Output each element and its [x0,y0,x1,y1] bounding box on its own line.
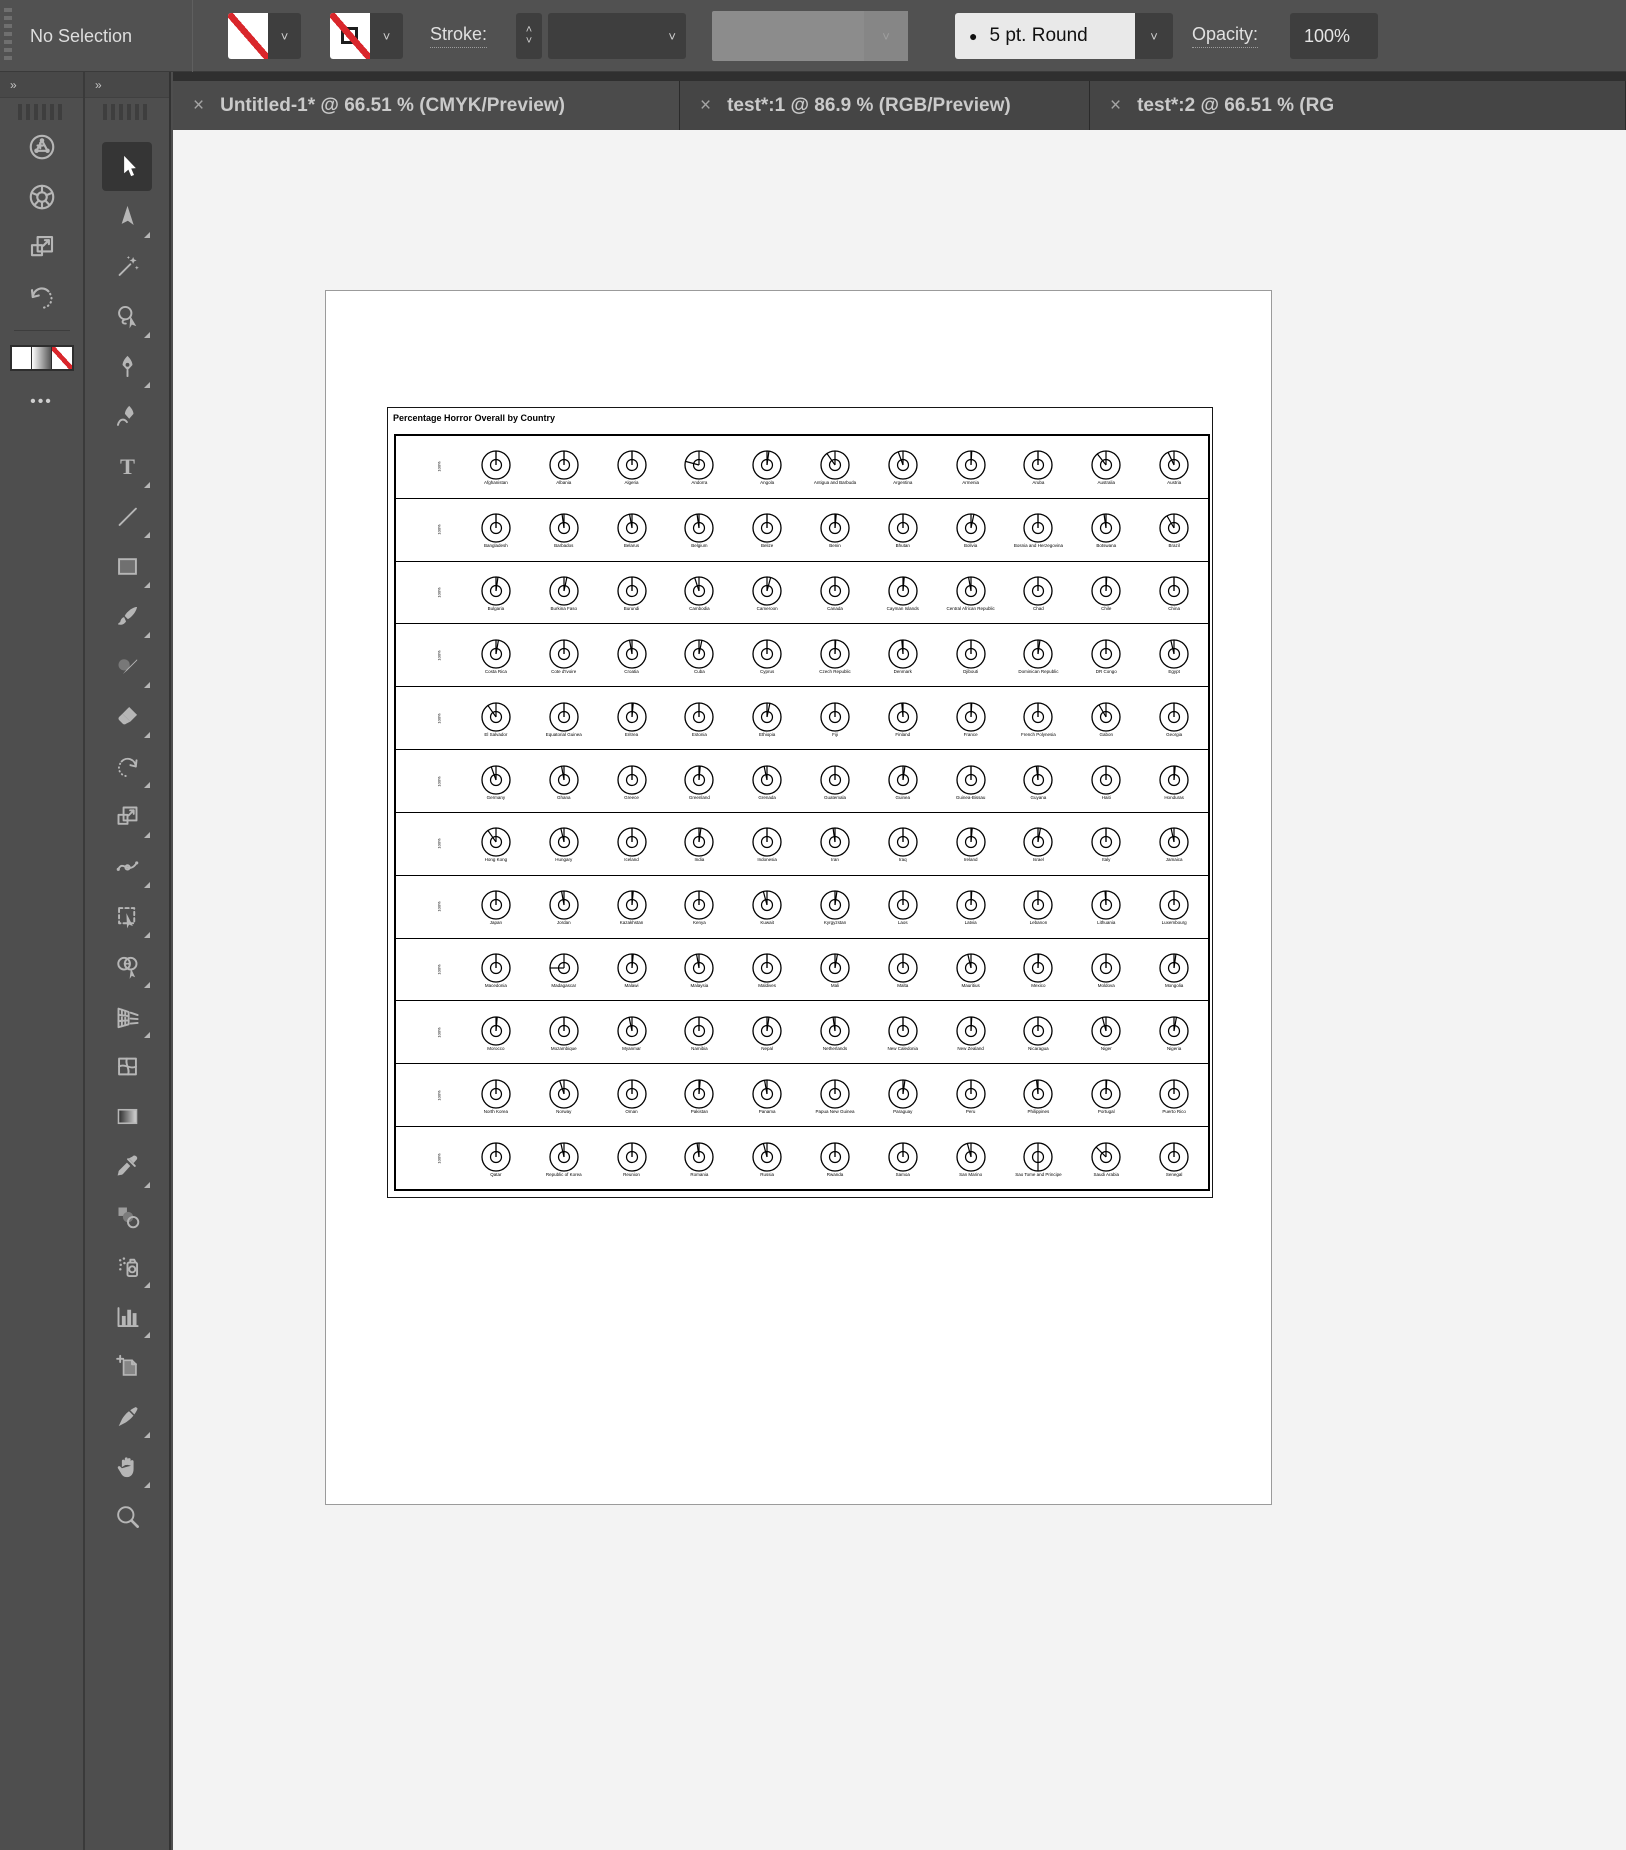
gauge-cell[interactable]: Paraguay [886,1077,920,1114]
pen-tool[interactable] [102,342,152,391]
gauge-cell[interactable]: Iran [818,825,852,862]
gauge-dial-icon [1021,888,1055,922]
pen [114,353,141,380]
paintbrush-tool[interactable] [102,592,152,641]
gauge-cell[interactable]: Central African Republic [946,574,994,611]
gauge-cell[interactable]: Iraq [886,825,920,862]
row-axis-label: 100% [436,964,441,974]
gauge-cell[interactable]: Saudi Arabia [1089,1140,1123,1177]
country-label: Bulgaria [488,606,505,611]
gauge-cell[interactable]: Peru [954,1077,988,1114]
country-label: Puerto Rico [1162,1109,1186,1114]
gauge-cell[interactable]: France [954,700,988,737]
gauge-cell[interactable]: Maldives [750,951,784,988]
gauge-cell[interactable]: Chad [1021,574,1055,611]
gauge-dial-icon [479,763,513,797]
variable-width-profile-dropdown[interactable]: ˅ [712,11,908,61]
gauge-cell[interactable]: Niger [1089,1014,1123,1051]
gauge-cell[interactable]: Kenya [682,888,716,925]
gauge-cell[interactable]: El Salvador [479,700,513,737]
gauge-cell[interactable]: Malaysia [682,951,716,988]
gauge-dial-icon [1021,574,1055,608]
gauge-cell[interactable]: Kazakhstan [615,888,649,925]
shape-builder-tool[interactable] [102,942,152,991]
free-transform-tool[interactable] [102,892,152,941]
gauge-cell[interactable]: Cote d'Ivoire [547,637,581,674]
direct-selection-tool[interactable] [102,192,152,241]
gauge-cell[interactable]: Jordan [547,888,581,925]
symbol-sprayer [114,1253,141,1280]
rotate-view-wheel-icon [27,182,57,212]
gauge-cell[interactable]: Oman [615,1077,649,1114]
country-label: Paraguay [893,1109,912,1114]
gauge-cell[interactable]: Puerto Rico [1157,1077,1191,1114]
gauge-cell[interactable]: Austria [1157,448,1191,485]
gauge-dial-icon [1089,637,1123,671]
opacity-field[interactable]: 100% [1290,13,1378,59]
gauge-cell[interactable]: Luxembourg [1157,888,1191,925]
gauge-cell[interactable]: Italy [1089,825,1123,862]
gauge-cell[interactable]: Romania [682,1140,716,1177]
gauge-dial-icon [750,448,784,482]
gauge-cell[interactable]: Netherlands [818,1014,852,1051]
gauge-dial-icon [818,763,852,797]
country-label: Kenya [693,920,706,925]
gauge-dial-icon [886,763,920,797]
hand-tool[interactable] [102,1442,152,1491]
brush-definition-control[interactable]: ● 5 pt. Round ˅ [955,13,1173,59]
gauge-grid[interactable]: 100% Afghanistan Albania Algeria [394,434,1210,1191]
shaper-tool[interactable] [102,642,152,691]
gauge-cell[interactable]: Lithuania [1089,888,1123,925]
gauge-dial-icon [682,1077,716,1111]
gauge-dial-icon [547,888,581,922]
gauge-cell[interactable]: Botswana [1089,511,1123,548]
gauge-cell[interactable]: Bosnia and Herzegovina [1014,511,1063,548]
opacity-label[interactable]: Opacity: [1192,24,1258,48]
gauge-cell[interactable]: Laos [886,888,920,925]
left-docks: » ••• » T [0,72,173,1850]
country-label: Morocco [487,1046,504,1051]
gauge-cell[interactable]: North Korea [479,1077,513,1114]
country-label: Mongolia [1165,983,1183,988]
gauge-cell[interactable]: Andorra [682,448,716,485]
gauge-dial-icon [1021,1077,1055,1111]
gauge-cell[interactable]: Mauritius [954,951,988,988]
gauge-cell[interactable]: Honduras [1157,763,1191,800]
gauge-cell[interactable]: Canada [818,574,852,611]
gauge-cell[interactable]: Panama [750,1077,784,1114]
blend [114,1203,141,1230]
artboard[interactable]: Percentage Horror Overall by Country 100… [325,290,1272,1505]
country-label: Cuba [694,669,705,674]
gauge-cell[interactable]: Brazil [1157,511,1191,548]
country-label: Cambodia [689,606,710,611]
gauge-cell[interactable]: Germany [479,763,513,800]
gauge-cell[interactable]: Denmark [886,637,920,674]
gauge-dial-icon [615,700,649,734]
gauge-cell[interactable]: Jamaica [1157,825,1191,862]
gauge-cell[interactable]: Malawi [615,951,649,988]
gauge-cell[interactable]: Qatar [479,1140,513,1177]
gauge-dial-icon [954,700,988,734]
tools-grip-handle[interactable] [103,104,151,120]
gauge-cell[interactable]: Eritrea [615,700,649,737]
gauge-cell[interactable]: Nicaragua [1021,1014,1055,1051]
none-swatch[interactable] [52,347,72,369]
gauge-cell[interactable]: Malta [886,951,920,988]
revert-rotate-button[interactable] [14,272,70,322]
gauge-dial-icon [886,1077,920,1111]
gauge-cell[interactable]: Benin [818,511,852,548]
gauge-cell[interactable]: San Marino [954,1140,988,1177]
gauge-cell[interactable]: Mongolia [1157,951,1191,988]
gauge-cell[interactable]: Ethiopia [750,700,784,737]
stroke-width-stepper[interactable]: ˄˅ [516,13,542,59]
gauge-cell[interactable]: Gabon [1089,700,1123,737]
fill-dropdown-chevron-icon[interactable]: ˅ [268,13,301,59]
gauge-cell[interactable]: Cambodia [682,574,716,611]
zoom-tool[interactable] [102,1492,152,1541]
gauge-cell[interactable]: Moldova [1089,951,1123,988]
gauge-cell[interactable]: Burkina Faso [547,574,581,611]
gauge-cell[interactable]: Guatemala [818,763,852,800]
gauge-cell[interactable]: Burundi [615,574,649,611]
gauge-cell[interactable]: Georgia [1157,700,1191,737]
blend-tool[interactable] [102,1192,152,1241]
gauge-cell[interactable]: Madagascar [547,951,581,988]
document-tab[interactable]: × test*:1 @ 86.9 % (RGB/Preview) [680,81,1090,130]
fill-none-swatch-icon[interactable] [228,13,268,59]
gauge-row: 100% Bulgaria Burkina Faso Burundi [396,562,1208,625]
curvature-tool[interactable] [102,392,152,441]
gauge-dial-icon [1157,448,1191,482]
tools-collapse-button[interactable]: » [85,72,169,98]
gauge-cell[interactable]: Cameroon [750,574,784,611]
gauge-cell[interactable]: Japan [479,888,513,925]
gauge-dial-icon [615,511,649,545]
gauge-cell[interactable]: Myanmar [615,1014,649,1051]
dock-grip-handle[interactable] [18,104,65,120]
gauge-cell[interactable]: Argentina [886,448,920,485]
country-label: Ethiopia [759,732,775,737]
type: T [114,453,141,480]
slice-tool[interactable] [102,1392,152,1441]
gauge-cell[interactable]: Dominican Republic [1018,637,1058,674]
line-segment-tool[interactable] [102,492,152,541]
tab-close-icon[interactable]: × [700,95,711,117]
gauge-dial-icon [1089,1014,1123,1048]
svg-text:T: T [119,454,134,479]
stroke-color-control[interactable]: ˅ [330,13,403,59]
gauge-cell[interactable]: Guyana [1021,763,1055,800]
selection-tool[interactable] [102,142,152,191]
country-label: Luxembourg [1162,920,1187,925]
symbol-sprayer-tool[interactable] [102,1242,152,1291]
gauge-cell[interactable]: Bulgaria [479,574,513,611]
stroke-none-swatch-icon[interactable] [330,13,370,59]
gauge-cell[interactable]: Latvia [954,888,988,925]
gauge-cell[interactable]: Iceland [615,825,649,862]
country-label: Afghanistan [484,480,508,485]
scale-tool[interactable] [102,792,152,841]
lasso-tool[interactable] [102,292,152,341]
country-label: Norway [556,1109,571,1114]
gauge-cell[interactable]: Israel [1021,825,1055,862]
country-label: Mali [831,983,839,988]
country-label: Lebanon [1030,920,1048,925]
country-label: Nepal [761,1046,773,1051]
gauge-cell[interactable]: Chile [1089,574,1123,611]
gauge-cell[interactable]: Cyprus [750,637,784,674]
eyedropper-tool[interactable] [102,1142,152,1191]
column-graph-tool[interactable] [102,1292,152,1341]
country-label: Ghana [557,795,571,800]
country-label: Argentina [893,480,912,485]
gauge-dial-icon [547,1014,581,1048]
country-label: Bolivia [964,543,977,548]
gauge-dial-icon [1157,825,1191,859]
gauge-cell[interactable]: Estonia [682,700,716,737]
country-label: Iceland [624,857,639,862]
eyedropper [114,1153,141,1180]
document-tab[interactable]: × test*:2 @ 66.51 % (RG [1090,81,1626,130]
country-label: Equatorial Guinea [546,732,582,737]
gauge-cell[interactable]: Armenia [954,448,988,485]
country-label: Nicaragua [1028,1046,1049,1051]
gauge-cell[interactable]: Greece [615,763,649,800]
gauge-dial-icon [818,574,852,608]
country-label: Czech Republic [819,669,851,674]
gauge-cell[interactable]: Philippines [1021,1077,1055,1114]
gauge-cell[interactable]: Guinea-Bissau [954,763,988,800]
gauge-cell[interactable]: Costa Rica [479,637,513,674]
gauge-dial-icon [954,763,988,797]
gauge-dial-icon [682,574,716,608]
rotate-view-wheel-button[interactable] [14,172,70,222]
gauge-cell[interactable]: Djibouti [954,637,988,674]
gauge-cell[interactable]: Antigua and Barbuda [814,448,856,485]
type-tool[interactable]: T [102,442,152,491]
touch-widget-button[interactable] [14,122,70,172]
control-bar-grip[interactable] [4,8,12,64]
row-axis-label: 100% [436,776,441,786]
gauge-cell[interactable]: Mali [818,951,852,988]
gauge-cell[interactable]: Egypt [1157,637,1191,674]
gauge-cell[interactable]: India [682,825,716,862]
gauge-dial-icon [682,700,716,734]
gauge-dial-icon [1089,825,1123,859]
gauge-cell[interactable]: Greenland [682,763,716,800]
gauge-cell[interactable]: Guinea [886,763,920,800]
gauge-cell[interactable]: New Caledonia [886,1014,920,1051]
free-transform [114,903,141,930]
swatches-strip[interactable] [10,345,74,371]
pasteboard[interactable]: Percentage Horror Overall by Country 100… [173,130,1626,1850]
line-segment [114,503,141,530]
stroke-width-chevron-icon[interactable]: ˅ [668,29,676,44]
tab-close-icon[interactable]: × [1110,95,1121,117]
gauge-cell[interactable]: Samoa [886,1140,920,1177]
gauge-dial-icon [1089,700,1123,734]
country-label: Russia [760,1172,774,1177]
gauge-cell[interactable]: China [1157,574,1191,611]
gauge-cell[interactable]: Bolivia [954,511,988,548]
country-label: Fiji [832,732,838,737]
gauge-cell[interactable]: Republic of Korea [546,1140,582,1177]
country-label: Cameroon [757,606,778,611]
gauge-dial-icon [1157,574,1191,608]
gauge-cell[interactable]: Bangladesh [479,511,513,548]
brush-definition-chevron-icon[interactable]: ˅ [1135,13,1173,59]
gauge-cell[interactable]: Afghanistan [479,448,513,485]
gauge-cell[interactable]: Mexico [1021,951,1055,988]
gauge-cell[interactable]: Belarus [615,511,649,548]
gauge-cell[interactable]: Namibia [682,1014,716,1051]
gauge-dial-icon [1157,763,1191,797]
gauge-cell[interactable]: Belgium [682,511,716,548]
mesh-tool[interactable] [102,1042,152,1091]
divider [192,0,193,72]
brush-definition-value[interactable]: ● 5 pt. Round [955,13,1135,59]
gauge-dial-icon [479,888,513,922]
magic-wand-tool[interactable] [102,242,152,291]
gauge-cell[interactable]: Papua New Guinea [815,1077,854,1114]
country-label: San Marino [959,1172,982,1177]
country-label: Pakistan [691,1109,708,1114]
gauge-cell[interactable]: Norway [547,1077,581,1114]
gauge-cell[interactable]: Reunion [615,1140,649,1177]
gauge-cell[interactable]: French Polynesia [1021,700,1056,737]
gauge-dial-icon [682,511,716,545]
gauge-cell[interactable]: Hungary [547,825,581,862]
dock-collapse-button[interactable]: » [0,72,83,98]
gauge-dial-icon [547,637,581,671]
lasso [114,303,141,330]
gauge-cell[interactable]: Sao Tome and Principe [1015,1140,1061,1177]
gauge-cell[interactable]: Russia [750,1140,784,1177]
row-axis-label: 100% [436,1090,441,1100]
gauge-cell[interactable]: Equatorial Guinea [546,700,582,737]
transform-scale-button[interactable] [14,222,70,272]
eraser-tool[interactable] [102,692,152,741]
gauge-dial-icon [615,888,649,922]
gradient-tool[interactable] [102,1092,152,1141]
tab-close-icon[interactable]: × [193,95,204,117]
revert-rotate-icon [27,282,57,312]
stroke-width-field[interactable]: ˅ [548,13,686,59]
row-axis-label: 100% [436,839,441,849]
gauge-cell[interactable]: Australia [1089,448,1123,485]
gauge-cell[interactable]: Portugal [1089,1077,1123,1114]
gauge-cell[interactable]: Kyrgyzstan [818,888,852,925]
gauge-cell[interactable]: Rwanda [818,1140,852,1177]
row-axis-label: 100% [436,587,441,597]
gauge-dial-icon [682,763,716,797]
fill-color-control[interactable]: ˅ [228,13,301,59]
gauge-dial-icon [818,1014,852,1048]
country-label: Finland [895,732,910,737]
gauge-cell[interactable]: Lebanon [1021,888,1055,925]
gauge-dial-icon [1021,1140,1055,1174]
rotate-tool[interactable] [102,742,152,791]
gauge-cell[interactable]: DR Congo [1089,637,1123,674]
gauge-dial-icon [818,1140,852,1174]
width-tool[interactable] [102,842,152,891]
gauge-cell[interactable]: Mozambique [547,1014,581,1051]
gauge-dial-icon [750,700,784,734]
gauge-cell[interactable]: Indonesia [750,825,784,862]
gradient-swatch[interactable] [32,347,52,369]
country-label: Denmark [894,669,912,674]
gauge-cell[interactable]: New Zealand [954,1014,988,1051]
perspective-grid [114,1003,141,1030]
gauge-cell[interactable]: Czech Republic [818,637,852,674]
stroke-label[interactable]: Stroke: [430,24,487,48]
more-options-icon[interactable]: ••• [30,393,53,411]
gauge-dial-icon [818,700,852,734]
gauge-dial-icon [818,825,852,859]
gauge-cell[interactable]: Haiti [1089,763,1123,800]
gauge-cell[interactable]: Ireland [954,825,988,862]
gauge-cell[interactable]: Macedonia [479,951,513,988]
gauge-cell[interactable]: Nigeria [1157,1014,1191,1051]
rectangle-tool[interactable] [102,542,152,591]
gauge-cell[interactable]: Bhutan [886,511,920,548]
gauge-cell[interactable]: Belize [750,511,784,548]
country-label: Djibouti [963,669,978,674]
gauge-dial-icon [954,574,988,608]
gauge-cell[interactable]: Hong Kong [479,825,513,862]
country-label: Armenia [962,480,979,485]
gauge-row: 100% Afghanistan Albania Algeria [396,436,1208,499]
gauge-dial-icon [547,825,581,859]
gauge-cell[interactable]: Barbados [547,511,581,548]
white-swatch[interactable] [12,347,32,369]
touch-widget-icon [27,132,57,162]
country-label: Mauritius [961,983,979,988]
gauge-cell[interactable]: Aruba [1021,448,1055,485]
gauge-dial-icon [886,1140,920,1174]
gauge-cell[interactable]: Cayman Islands [886,574,920,611]
gauge-cell[interactable]: Croatia [615,637,649,674]
gauge-cell[interactable]: Nepal [750,1014,784,1051]
gauge-cell[interactable]: Morocco [479,1014,513,1051]
gauge-cell[interactable]: Kuwait [750,888,784,925]
gauge-cell[interactable]: Fiji [818,700,852,737]
document-tab[interactable]: × Untitled-1* @ 66.51 % (CMYK/Preview) [173,81,680,130]
gauge-cell[interactable]: Ghana [547,763,581,800]
gauge-dial-icon [954,1014,988,1048]
gauge-dial-icon [818,951,852,985]
artboard-tool[interactable] [102,1342,152,1391]
stroke-dropdown-chevron-icon[interactable]: ˅ [370,13,403,59]
gauge-cell[interactable]: Albania [547,448,581,485]
country-label: Mexico [1031,983,1045,988]
gauge-cell[interactable]: Senegal [1157,1140,1191,1177]
gauge-cell[interactable]: Cuba [682,637,716,674]
perspective-grid-tool[interactable] [102,992,152,1041]
country-label: Bhutan [896,543,910,548]
gauge-cell[interactable]: Angola [750,448,784,485]
gauge-cell[interactable]: Grenada [750,763,784,800]
gauge-cell[interactable]: Finland [886,700,920,737]
gauge-dial-icon [615,1077,649,1111]
gauge-cell[interactable]: Algeria [615,448,649,485]
country-label: Qatar [490,1172,501,1177]
magic-wand [114,253,141,280]
gauge-cell[interactable]: Pakistan [682,1077,716,1114]
